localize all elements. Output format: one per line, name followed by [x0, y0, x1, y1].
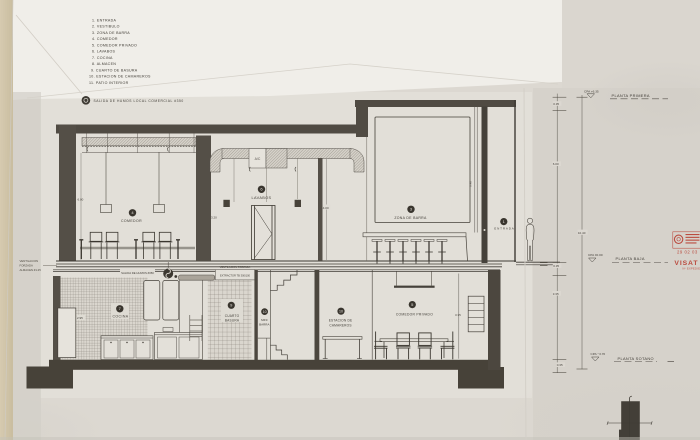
svg-text:FORZADA: FORZADA: [20, 264, 33, 268]
svg-text:ENTRADA: ENTRADA: [494, 226, 514, 230]
svg-text:COMEDOR: COMEDOR: [121, 219, 142, 223]
svg-text:VISAT: VISAT: [674, 260, 698, 267]
svg-text:9. CUARTO DE BASURA: 9. CUARTO DE BASURA: [91, 68, 138, 72]
svg-text:CPA +6.35: CPA +6.35: [584, 89, 599, 93]
svg-text:ZONA DE BARRA: ZONA DE BARRA: [394, 216, 427, 220]
svg-text:10.40: 10.40: [578, 231, 586, 235]
svg-text:ALMACEN #1.25: ALMACEN #1.25: [20, 268, 42, 272]
svg-text:SALIDA DE HUMOS #350: SALIDA DE HUMOS #350: [121, 271, 154, 275]
svg-text:6. LAVABOS: 6. LAVABOS: [92, 50, 116, 54]
svg-text:VENTILACION FORZADA: VENTILACION FORZADA: [220, 265, 251, 269]
svg-text:6.00: 6.00: [78, 198, 84, 202]
svg-text:BASURA: BASURA: [225, 319, 240, 323]
svg-text:6.48: 6.48: [469, 181, 473, 187]
svg-text:1. ENTRADA: 1. ENTRADA: [92, 18, 116, 22]
svg-text:Nº EXPEDIENT: Nº EXPEDIENT: [683, 266, 700, 270]
svg-text:EXTRACTOR TB 300/100: EXTRACTOR TB 300/100: [220, 273, 251, 277]
svg-text:CPA ±0.00: CPA ±0.00: [588, 253, 603, 257]
svg-text:3. ZONA DE BARRA: 3. ZONA DE BARRA: [92, 31, 130, 35]
svg-text:PLANTA SOTANO: PLANTA SOTANO: [618, 356, 654, 361]
svg-text:0.35: 0.35: [557, 363, 563, 367]
svg-text:3.20: 3.20: [211, 215, 217, 219]
svg-text:0.35: 0.35: [553, 264, 559, 268]
svg-text:COCINA: COCINA: [112, 315, 128, 319]
svg-text:LAVABOS: LAVABOS: [252, 196, 272, 200]
svg-text:8. ALMACEN: 8. ALMACEN: [92, 62, 116, 66]
svg-text:CPA −3.70: CPA −3.70: [591, 352, 606, 356]
svg-text:4.00: 4.00: [323, 206, 329, 210]
svg-text:3.35: 3.35: [553, 292, 559, 296]
svg-text:10: 10: [339, 310, 343, 314]
svg-text:29 02 03: 29 02 03: [677, 249, 698, 254]
svg-text:4. COMEDOR: 4. COMEDOR: [92, 37, 118, 41]
svg-text:PLANTA PRIMERA: PLANTA PRIMERA: [612, 93, 650, 98]
svg-text:CUARTO: CUARTO: [225, 314, 240, 318]
svg-text:CAMAREROS: CAMAREROS: [329, 324, 351, 328]
svg-text:2. VESTIBULO: 2. VESTIBULO: [92, 25, 120, 29]
svg-text:A/C: A/C: [255, 157, 261, 161]
svg-text:VENTILACION: VENTILACION: [20, 259, 39, 263]
svg-text:6.00: 6.00: [553, 162, 559, 166]
svg-text:3.35: 3.35: [455, 313, 461, 317]
svg-text:0.35: 0.35: [553, 102, 559, 106]
svg-text:SALIDA DE HUMOS LOCAL COME: SALIDA DE HUMOS LOCAL COMERCIAL #350: [94, 99, 184, 103]
svg-text:11. PATIO INTERIOR: 11. PATIO INTERIOR: [89, 81, 129, 85]
svg-text:BARRA: BARRA: [259, 322, 269, 326]
svg-text:COMEDOR PRIVADO: COMEDOR PRIVADO: [396, 313, 433, 317]
svg-text:5. COMEDOR PRIVADO: 5. COMEDOR PRIVADO: [92, 43, 137, 47]
svg-text:7. COCINA: 7. COCINA: [92, 56, 113, 60]
svg-text:ESTACION DE: ESTACION DE: [329, 319, 353, 323]
svg-text:10: 10: [263, 310, 267, 314]
svg-text:10. ESTACION DE CAMAREROS: 10. ESTACION DE CAMAREROS: [89, 75, 151, 79]
svg-text:2.95: 2.95: [77, 316, 83, 320]
svg-text:PLANTA BAJA: PLANTA BAJA: [616, 256, 645, 261]
